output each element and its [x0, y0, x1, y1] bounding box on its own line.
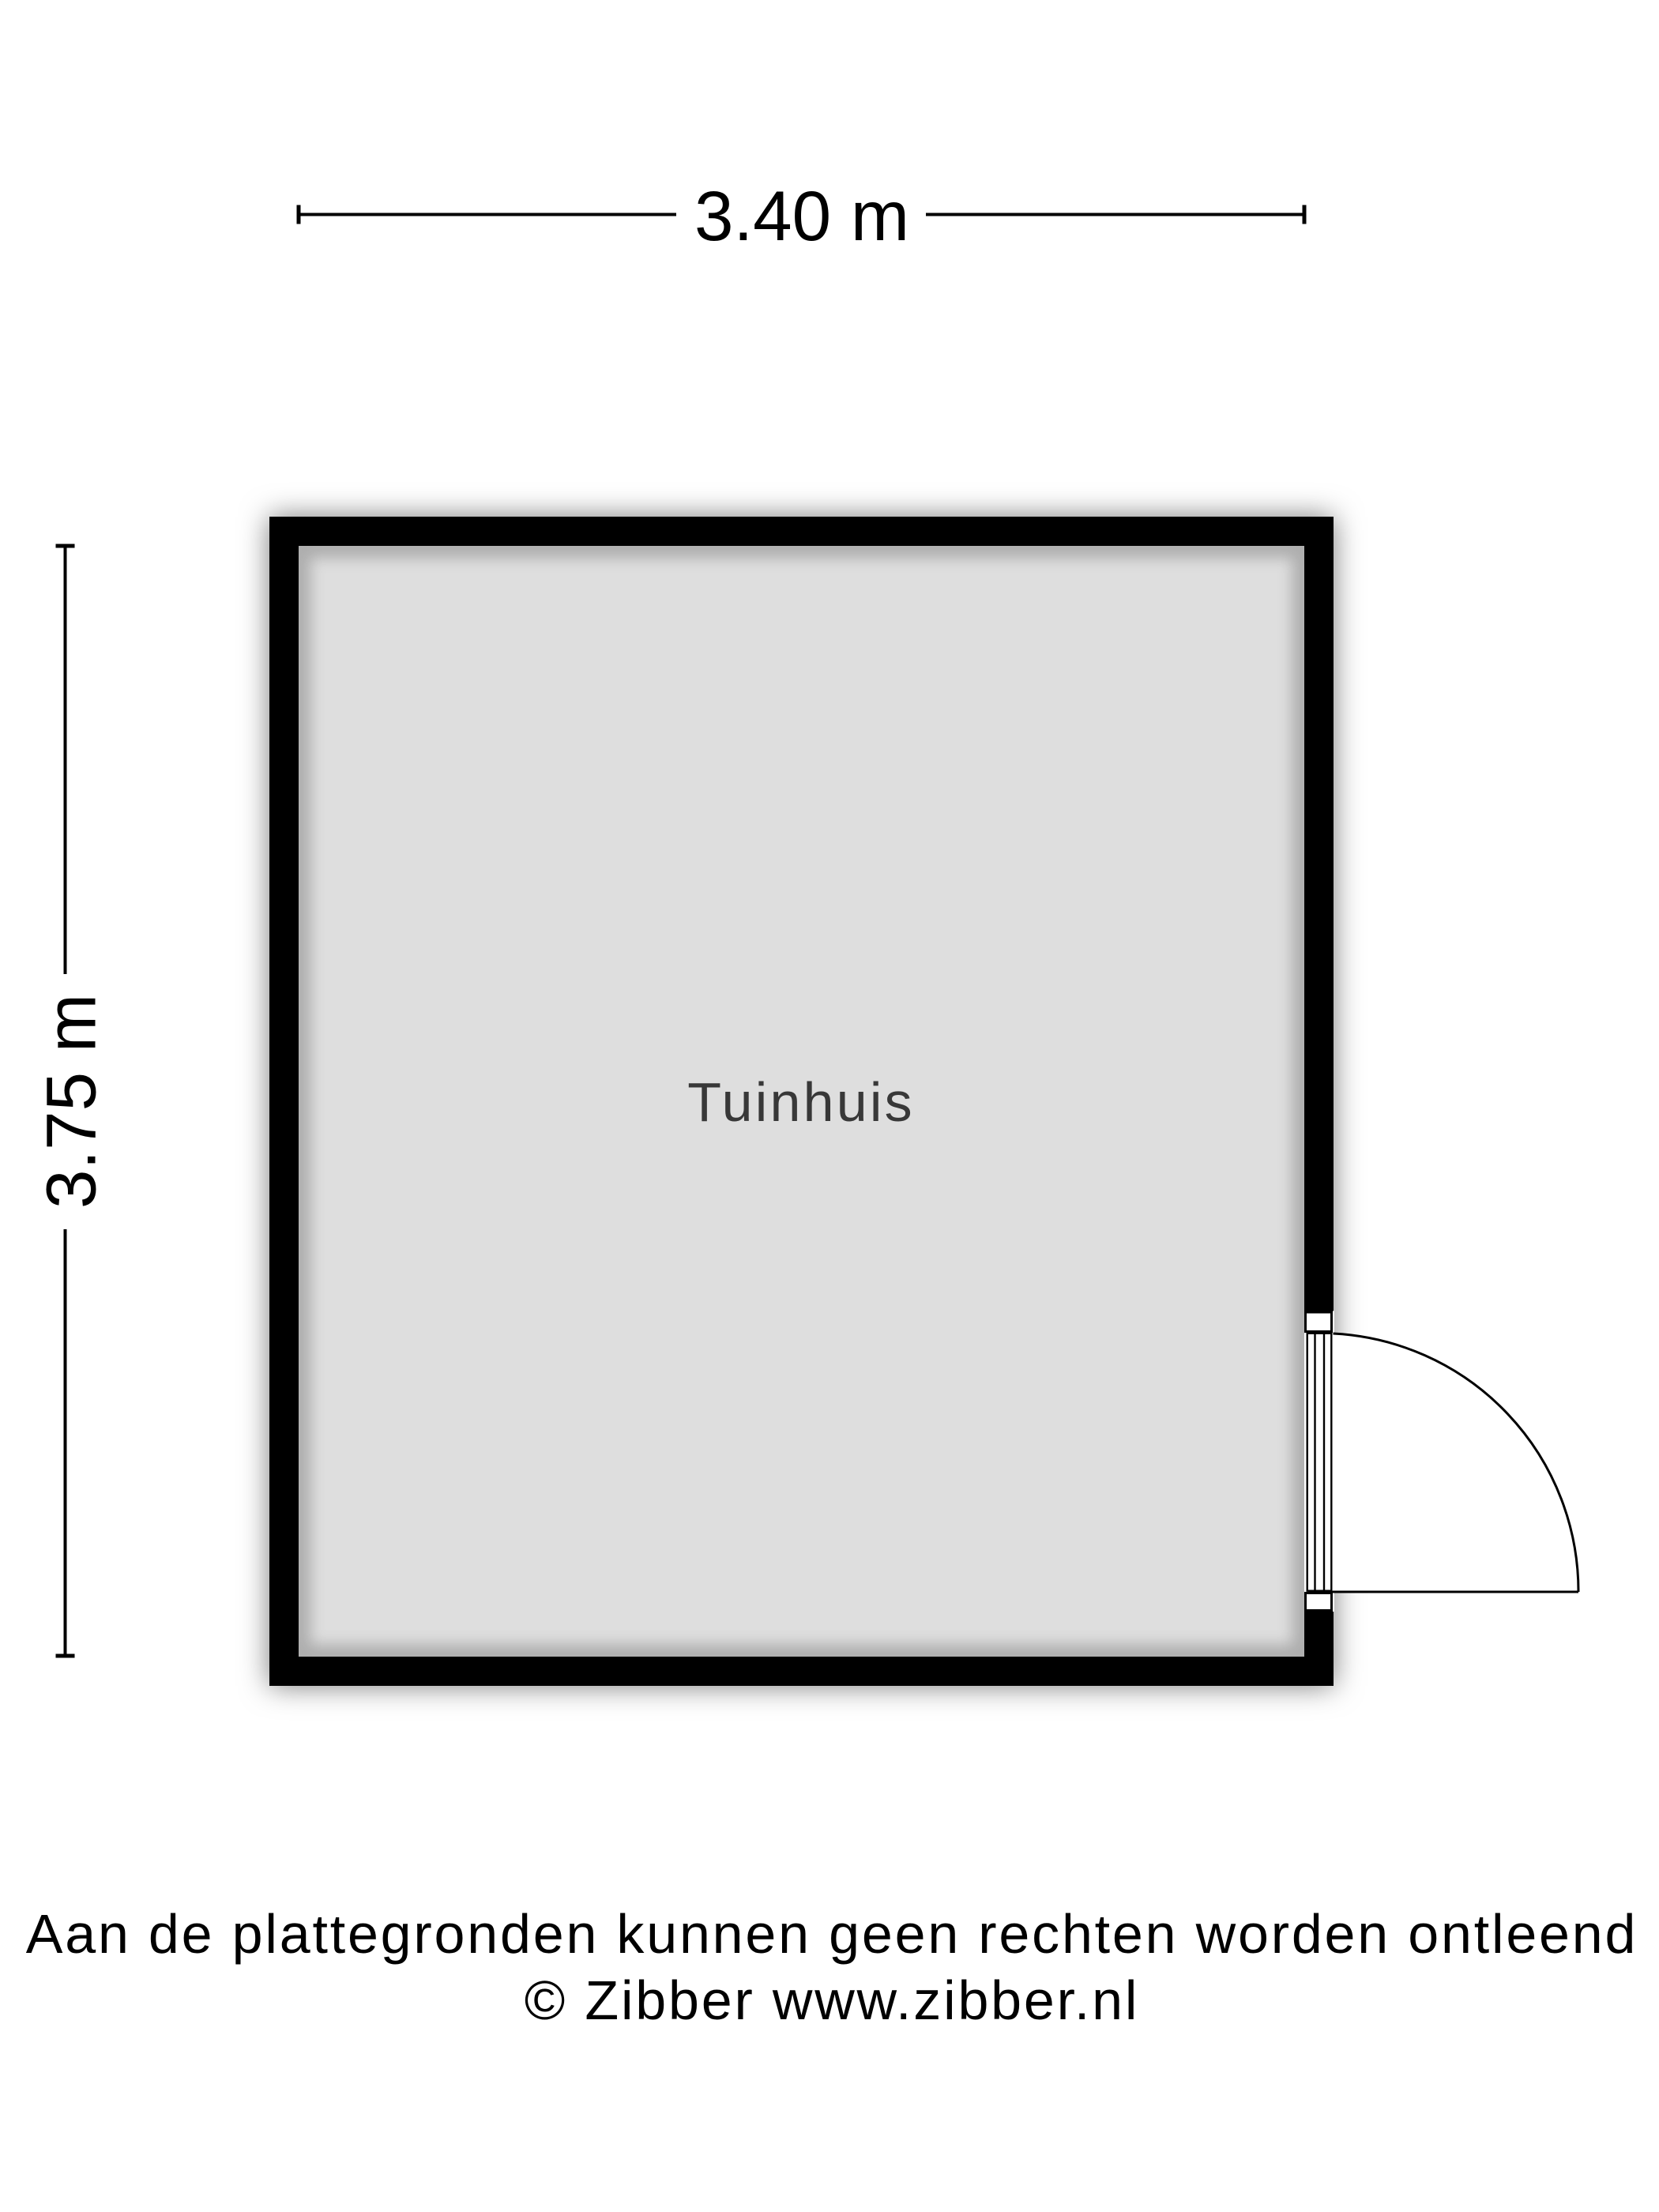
- svg-text:Aan de plattegronden kunnen ge: Aan de plattegronden kunnen geen rechten…: [26, 1903, 1638, 1965]
- svg-text:3.75 m: 3.75 m: [32, 994, 111, 1209]
- svg-text:Tuinhuis: Tuinhuis: [687, 1071, 915, 1133]
- svg-text:© Zibber www.zibber.nl: © Zibber www.zibber.nl: [525, 1969, 1139, 2031]
- svg-text:3.40 m: 3.40 m: [694, 176, 909, 255]
